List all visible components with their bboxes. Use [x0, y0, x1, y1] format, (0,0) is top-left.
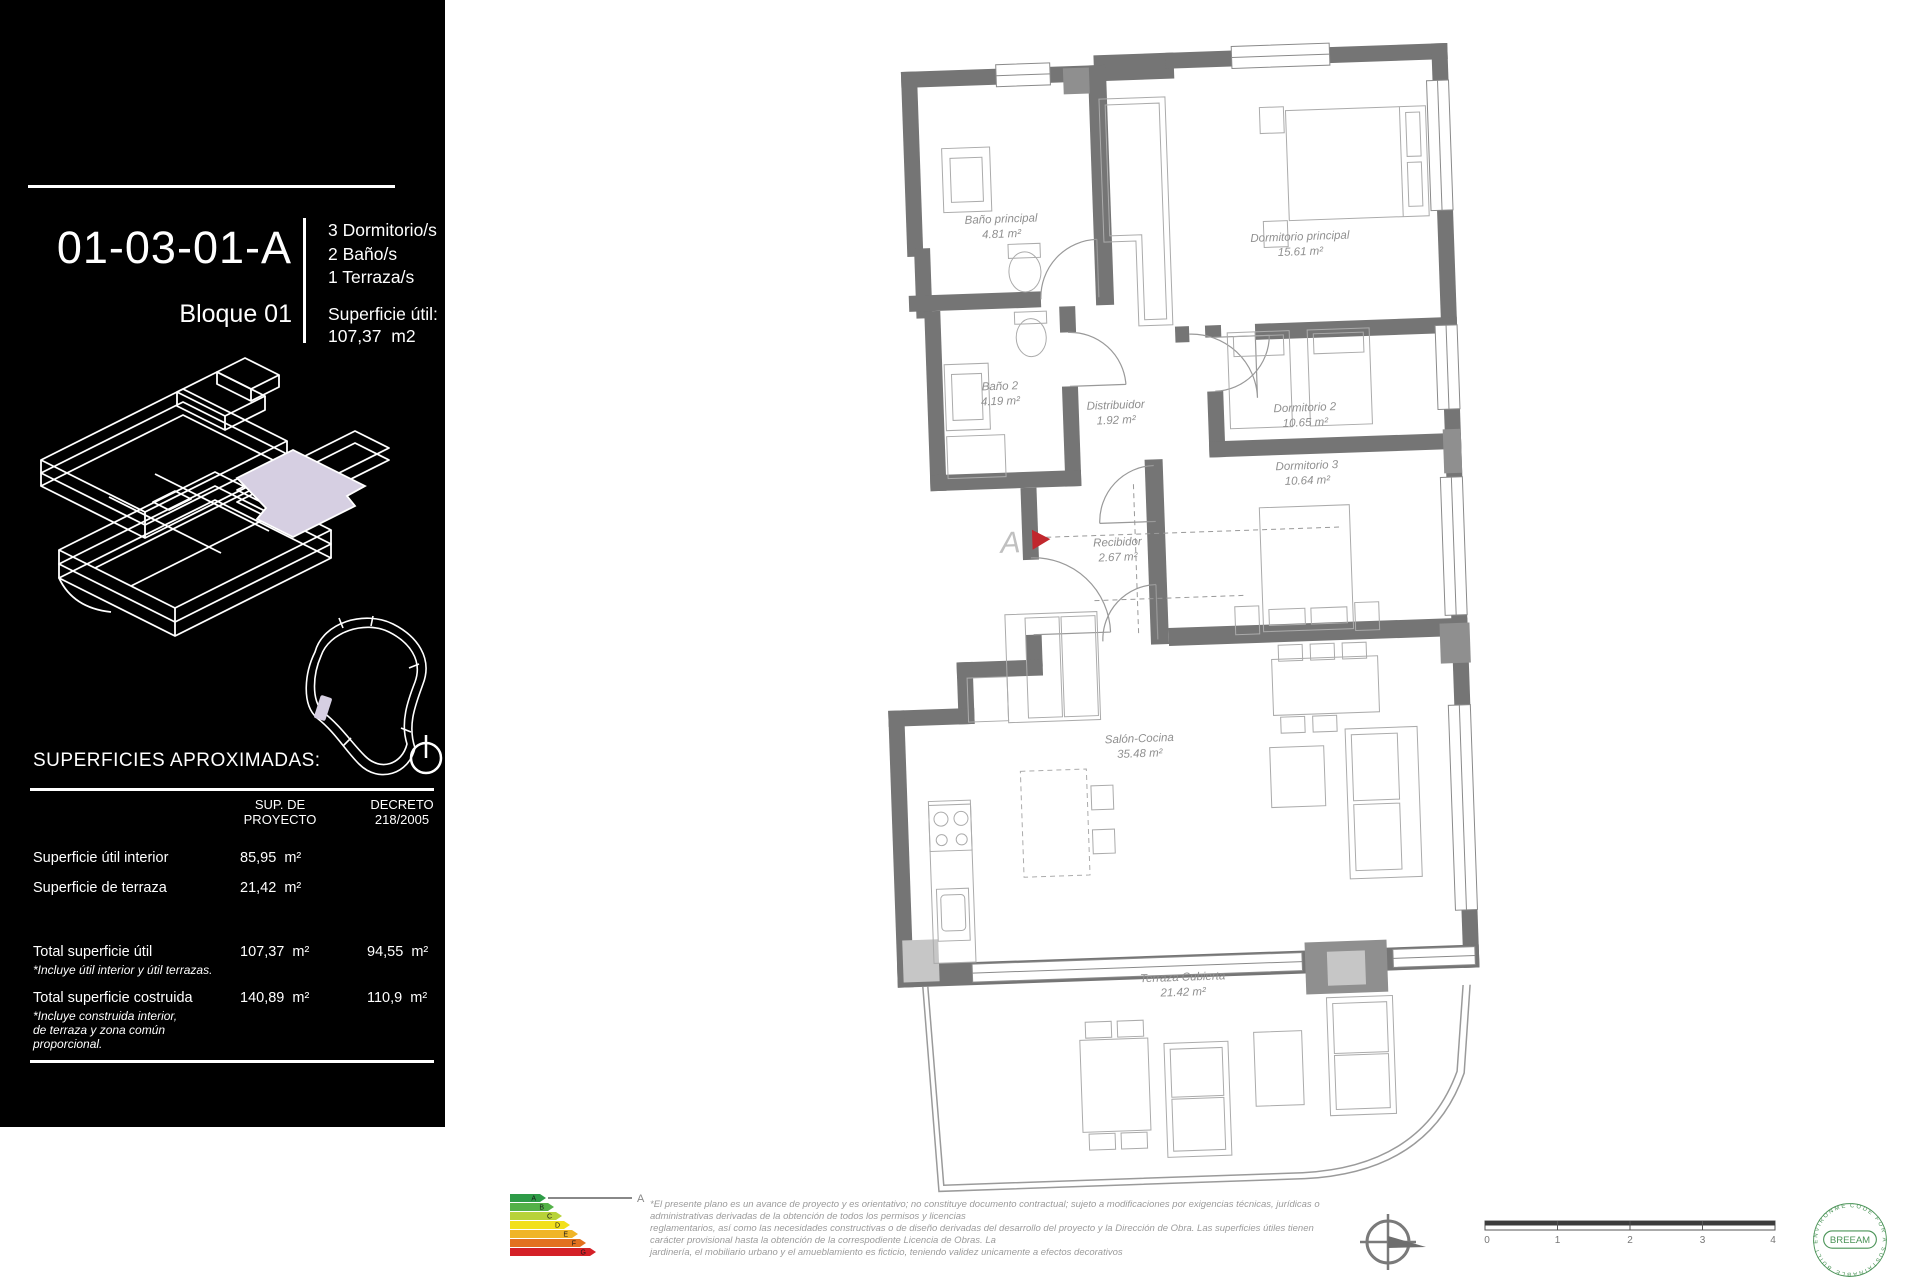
floor-plan-drawing: A Baño principal 4.81 m² Dormitorio prin… — [865, 35, 1475, 1195]
row-footnote: *Incluye construida interior, de terraza… — [33, 1009, 177, 1051]
row-label: Superficie útil interior — [33, 850, 168, 866]
row-value-proyecto: 107,37 m² — [240, 944, 309, 960]
divider-top — [28, 185, 395, 188]
divider-table-bottom — [30, 1060, 434, 1063]
block-label: Bloque 01 — [28, 300, 292, 329]
unit-features: 3 Dormitorio/s 2 Baño/s 1 Terraza/s — [328, 219, 437, 290]
entrance-arrow-icon — [1032, 529, 1051, 550]
scale-bar: 0 1 2 3 4 — [1480, 1216, 1800, 1250]
energy-bars: A B C D E F G — [510, 1194, 596, 1257]
room-label: Recibidor — [1093, 536, 1143, 550]
table-row: Superficie útil interior 85,95 m² — [33, 850, 438, 866]
building-axonometric-illustration — [25, 350, 400, 650]
scale-tick-label: 3 — [1700, 1235, 1706, 1246]
surfaces-heading: SUPERFICIES APROXIMADAS: — [33, 750, 321, 772]
feature-bedrooms: 3 Dormitorio/s — [328, 219, 437, 243]
energy-bar-a — [510, 1194, 546, 1202]
feature-terraces: 1 Terraza/s — [328, 266, 437, 290]
row-label: Total superficie costruida — [33, 990, 193, 1006]
energy-rating-value: A — [637, 1193, 645, 1205]
room-area: 4.81 m² — [982, 228, 1023, 241]
divider-vertical — [303, 218, 306, 343]
walls — [866, 43, 1480, 988]
row-value-decreto: 94,55 m² — [367, 944, 428, 960]
energy-rating-label: A B C D E F G A — [506, 1192, 651, 1262]
unit-code: 01-03-01-A — [28, 222, 292, 274]
floor-plan-sheet: 01-03-01-A Bloque 01 3 Dormitorio/s 2 Ba… — [0, 0, 1920, 1280]
feature-bathrooms: 2 Baño/s — [328, 243, 437, 267]
table-row: Total superficie útil 107,37 m² 94,55 m² — [33, 944, 438, 960]
scale-tick-label: 1 — [1555, 1235, 1561, 1246]
room-area: 1.92 m² — [1096, 414, 1137, 427]
table-row: Total superficie costruida 140,89 m² 110… — [33, 990, 438, 1006]
table-col1-header: SUP. DE PROYECTO — [235, 797, 325, 827]
windows — [940, 39, 1479, 982]
energy-letter: F — [572, 1241, 576, 1248]
room-label: Dormitorio principal — [1250, 229, 1350, 244]
scale-tick-label: 4 — [1770, 1235, 1776, 1246]
row-value-decreto: 110,9 m² — [367, 990, 427, 1006]
energy-letter: C — [547, 1214, 552, 1221]
row-value-proyecto: 140,89 m² — [240, 990, 309, 1006]
floor-plan: A Baño principal 4.81 m² Dormitorio prin… — [865, 35, 1475, 1195]
room-area: 10.65 m² — [1282, 416, 1329, 430]
pillars — [1063, 55, 1482, 1002]
room-area: 10.64 m² — [1285, 474, 1332, 488]
scale-tick-label: 0 — [1484, 1235, 1490, 1246]
energy-bar-b — [510, 1203, 554, 1211]
room-label: Dormitorio 2 — [1273, 401, 1337, 415]
terrace-boundary — [923, 968, 1477, 1192]
dashed-lines — [1035, 477, 1345, 640]
room-area: 35.48 m² — [1117, 747, 1164, 761]
row-label: Total superficie útil — [33, 944, 152, 960]
divider-table-top — [30, 788, 434, 791]
legal-disclaimer: *El presente plano es un avance de proye… — [650, 1199, 1350, 1259]
room-area: 4.19 m² — [981, 395, 1022, 408]
room-label: Dormitorio 3 — [1275, 459, 1339, 473]
table-col2-header: DECRETO 218/2005 — [356, 797, 448, 827]
breeam-logo: CODE FOR A SUSTAINABLE BUILT ENVIRONMENT… — [1806, 1200, 1894, 1280]
entrance-letter: A — [998, 526, 1021, 560]
row-label: Superficie de terraza — [33, 880, 167, 896]
room-label: Terraza Cubierta — [1140, 970, 1226, 985]
compass-pointer — [1388, 1236, 1426, 1248]
room-label: Baño principal — [964, 212, 1038, 227]
orientation-icon — [405, 731, 447, 779]
row-value-proyecto: 21,42 m² — [240, 880, 301, 896]
room-area: 21.42 m² — [1159, 986, 1207, 1000]
room-area: 2.67 m² — [1097, 551, 1139, 564]
breeam-wordmark: BREEAM — [1830, 1235, 1870, 1246]
room-label: Salón-Cocina — [1105, 732, 1174, 746]
energy-letter: G — [581, 1250, 586, 1257]
row-value-proyecto: 85,95 m² — [240, 850, 301, 866]
energy-bar-d — [510, 1221, 570, 1229]
useful-area-value: 107,37 m2 — [328, 325, 438, 347]
useful-area-heading: Superficie útil: — [328, 303, 438, 325]
scale-tick-label: 2 — [1627, 1235, 1633, 1246]
energy-letter: A — [531, 1196, 536, 1203]
table-row: Superficie de terraza 21,42 m² — [33, 880, 438, 896]
energy-letter: B — [539, 1205, 544, 1212]
room-area: 15.61 m² — [1278, 245, 1325, 259]
compass-icon — [1352, 1210, 1432, 1276]
energy-letter: E — [563, 1232, 568, 1239]
useful-area: Superficie útil: 107,37 m2 — [328, 303, 438, 347]
room-label: Distribuidor — [1086, 399, 1146, 413]
info-sidebar: 01-03-01-A Bloque 01 3 Dormitorio/s 2 Ba… — [0, 0, 445, 1127]
row-footnote: *Incluye útil interior y útil terrazas. — [33, 963, 212, 977]
energy-bar-c — [510, 1212, 562, 1220]
room-label: Baño 2 — [982, 380, 1019, 393]
energy-letter: D — [555, 1223, 560, 1230]
